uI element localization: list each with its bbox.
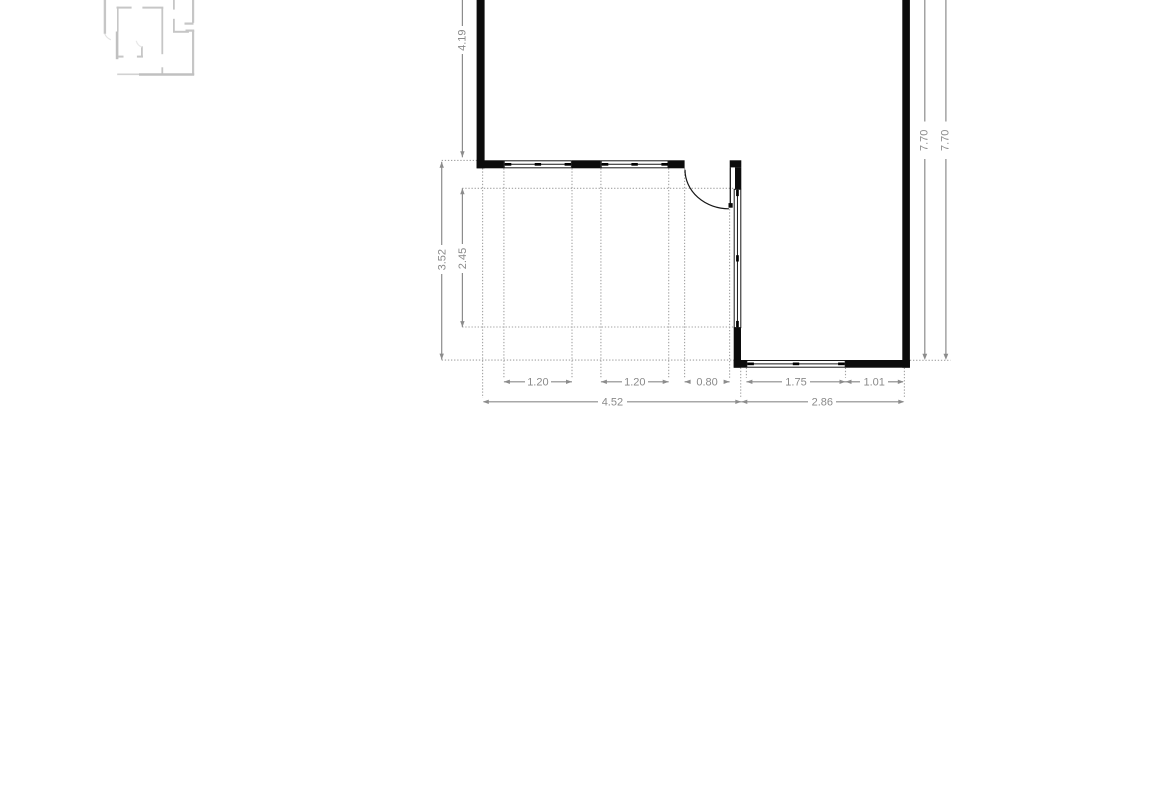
svg-text:3.52: 3.52 (437, 249, 449, 270)
svg-text:2.45: 2.45 (457, 248, 469, 269)
svg-text:1.20: 1.20 (624, 377, 645, 389)
svg-text:1.75: 1.75 (785, 377, 806, 389)
svg-text:1.01: 1.01 (863, 377, 884, 389)
svg-text:0.80: 0.80 (696, 377, 717, 389)
svg-text:4.19: 4.19 (457, 29, 469, 50)
svg-text:7.70: 7.70 (939, 130, 951, 151)
svg-text:2.86: 2.86 (812, 397, 833, 409)
svg-text:1.20: 1.20 (527, 377, 548, 389)
svg-text:7.70: 7.70 (918, 130, 930, 151)
svg-text:4.52: 4.52 (602, 397, 623, 409)
